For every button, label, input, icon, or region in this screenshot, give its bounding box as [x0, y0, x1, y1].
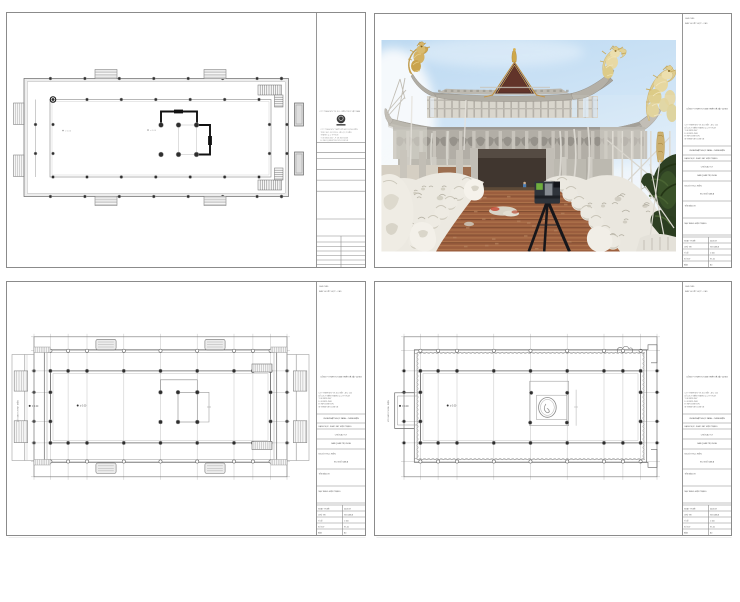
svg-text:E: INFO@VIET.VN: E: INFO@VIET.VN	[685, 136, 701, 138]
svg-text:CÔNG TY TNHH TƯ VẤN THIẾT KẾ X: CÔNG TY TNHH TƯ VẤN THIẾT KẾ XÂY DỰNG	[320, 376, 362, 379]
svg-text:E: INFO@VIET.VN: E: INFO@VIET.VN	[319, 404, 335, 406]
svg-text:CHỦ ĐẦU TƯ:: CHỦ ĐẦU TƯ:	[335, 434, 348, 437]
svg-text:HẠNG MỤC: KHẢO SÁT HIỆN TRẠNG: HẠNG MỤC: KHẢO SÁT HIỆN TRẠNG	[685, 157, 719, 160]
svg-text:KT-01: KT-01	[710, 259, 715, 261]
svg-text:HẠNG MỤC: KHẢO SÁT HIỆN TRẠNG: HẠNG MỤC: KHẢO SÁT HIỆN TRẠNG	[319, 425, 353, 428]
svg-text:GHI CHÚ:: GHI CHÚ:	[685, 17, 695, 20]
svg-text:04/2019: 04/2019	[344, 509, 351, 511]
svg-text:T: 08 3823 4567: T: 08 3823 4567	[685, 130, 698, 132]
svg-text:CHỦ TRÌ: CHỦ TRÌ	[684, 514, 692, 517]
svg-text:NGưỜI THựC HIỆN:: NGưỜI THựC HIỆN:	[319, 453, 337, 456]
svg-text:NGÀY TH.KẾ: NGÀY TH.KẾ	[684, 508, 696, 511]
svg-text:NGÀY TH.KẾ: NGÀY TH.KẾ	[684, 240, 696, 243]
svg-text:CHÙA PHẬT NGỌC XANH - CHÍNH ĐI: CHÙA PHẬT NGỌC XANH - CHÍNH ĐIỆN	[689, 417, 725, 420]
svg-text:BAN QUẢN TRỊ CHÙA: BAN QUẢN TRỊ CHÙA	[697, 442, 717, 445]
svg-text:GHI CHÚ:: GHI CHÚ:	[685, 285, 695, 288]
svg-text:± 0.00: ± 0.00	[32, 406, 39, 408]
svg-text:W: WWW.VIET.COM.VN: W: WWW.VIET.COM.VN	[319, 407, 339, 409]
svg-text:A3: A3	[710, 532, 712, 535]
svg-text:CHỦ ĐẦU TƯ:: CHỦ ĐẦU TƯ:	[701, 166, 714, 169]
svg-text:1:100: 1:100	[710, 521, 715, 523]
svg-text:GHI CHÚ:: GHI CHÚ:	[319, 285, 329, 288]
svg-text:TÊN BẢN Vẽ:: TÊN BẢN Vẽ:	[685, 473, 697, 476]
svg-text:BẢN Vẽ KẾT HỢP - CAD: BẢN Vẽ KẾT HỢP - CAD	[319, 290, 342, 293]
svg-text:04/2019: 04/2019	[710, 509, 717, 511]
svg-text:04/2019: 04/2019	[710, 241, 717, 243]
svg-text:SỐ B.V: SỐ B.V	[684, 526, 691, 529]
svg-text:E: INFO@VIET.VN: E: INFO@VIET.VN	[685, 404, 701, 406]
svg-text:HẠNG MỤC: KHẢO SÁT HIỆN TRẠNG: HẠNG MỤC: KHẢO SÁT HIỆN TRẠNG	[685, 425, 719, 428]
svg-text:KT-01: KT-01	[710, 527, 715, 529]
svg-text:LÊ LỢI, P. BẾN THÀNH, Q.1, TP.: LÊ LỢI, P. BẾN THÀNH, Q.1, TP. HCM	[685, 394, 717, 397]
svg-text:LÊ LỢI, P. BẾN THÀNH, Q.1, TP.: LÊ LỢI, P. BẾN THÀNH, Q.1, TP. HCM	[685, 126, 717, 129]
svg-text:± 0.00: ± 0.00	[402, 406, 409, 408]
svg-text:C.TY TNHH MTV T.K X.D VIỆT - Đ: C.TY TNHH MTV T.K X.D VIỆT - Đ/C: 125	[319, 392, 353, 395]
svg-text:C.TY TNHH MTV THIẾT KẾ XÂY DỰN: C.TY TNHH MTV THIẾT KẾ XÂY DỰNG KIẾN	[321, 128, 359, 131]
svg-text:F: 08 3823 4568: F: 08 3823 4568	[319, 401, 332, 403]
svg-text:F: 08 3823 4568: F: 08 3823 4568	[685, 401, 698, 403]
svg-text:TÊN BẢN Vẽ:: TÊN BẢN Vẽ:	[685, 205, 697, 208]
svg-text:LỐI VÀO CHÍNH ĐIỆN: LỐI VÀO CHÍNH ĐIỆN	[17, 400, 20, 423]
svg-text:TỈ LỆ: TỈ LỆ	[318, 520, 323, 523]
svg-text:TỈ LỆ: TỈ LỆ	[684, 520, 689, 523]
svg-text:T: 08 3823 4567 - F: 08 3823 4: T: 08 3823 4567 - F: 08 3823 4568	[321, 137, 349, 139]
svg-text:NG.VĂN A: NG.VĂN A	[710, 246, 720, 249]
svg-text:KS. NGÔ VĂN A: KS. NGÔ VĂN A	[334, 461, 349, 464]
svg-text:W: WWW.VIET.COM.VN: W: WWW.VIET.COM.VN	[685, 407, 705, 409]
svg-text:BẢN: BẢN	[318, 532, 323, 535]
svg-text:1:100: 1:100	[344, 521, 349, 523]
svg-text:C.TY TNHH MTV T.K X.D - KIẾN T: C.TY TNHH MTV T.K X.D - KIẾN TRÚC VIỆT N…	[320, 110, 361, 113]
svg-text:CÔNG TY TNHH TƯ VẤN THIẾT KẾ X: CÔNG TY TNHH TƯ VẤN THIẾT KẾ XÂY DỰNG	[686, 108, 728, 111]
svg-text:± 0.00: ± 0.00	[65, 131, 72, 133]
svg-text:BẢN Vẽ KẾT HỢP - CAD: BẢN Vẽ KẾT HỢP - CAD	[685, 22, 708, 25]
svg-text:KS. NGÔ VĂN A: KS. NGÔ VĂN A	[700, 461, 715, 464]
svg-text:W: WWW.VIET.COM.VN: W: WWW.VIET.COM.VN	[685, 139, 705, 141]
svg-text:TRÚC Đ/C: SỐ 125 Đ. LÊ LỢI, P.: TRÚC Đ/C: SỐ 125 Đ. LÊ LỢI, P. BẾN	[321, 131, 353, 134]
svg-text:1:100: 1:100	[710, 253, 715, 255]
svg-text:TÊN BẢN Vẽ:: TÊN BẢN Vẽ:	[319, 473, 331, 476]
svg-text:NG.VĂN A: NG.VĂN A	[710, 514, 720, 517]
svg-text:T: 08 3823 4567: T: 08 3823 4567	[685, 398, 698, 400]
svg-text:NGÀY TH.KẾ: NGÀY TH.KẾ	[318, 508, 330, 511]
svg-text:A3: A3	[344, 532, 346, 535]
svg-text:BẢN Vẽ KẾT HỢP - CAD: BẢN Vẽ KẾT HỢP - CAD	[685, 290, 708, 293]
svg-text:NGưỜI THựC HIỆN:: NGưỜI THựC HIỆN:	[685, 453, 703, 456]
svg-text:C.TY TNHH MTV T.K X.D VIỆT - Đ: C.TY TNHH MTV T.K X.D VIỆT - Đ/C: 125	[685, 392, 719, 395]
svg-text:KT-01: KT-01	[344, 527, 349, 529]
svg-text:NGưỜI THựC HIỆN:: NGưỜI THựC HIỆN:	[685, 185, 703, 188]
svg-text:CÔNG TY TNHH TƯ VẤN THIẾT KẾ X: CÔNG TY TNHH TƯ VẤN THIẾT KẾ XÂY DỰNG	[686, 376, 728, 379]
svg-text:MẶT BẰNG HIỆN TRẠNG: MẶT BẰNG HIỆN TRẠNG	[319, 490, 342, 493]
svg-text:MẶT BẰNG HIỆN TRẠNG: MẶT BẰNG HIỆN TRẠNG	[685, 222, 708, 225]
svg-text:CHÙA PHẬT NGỌC XANH - CHÍNH ĐI: CHÙA PHẬT NGỌC XANH - CHÍNH ĐIỆN	[689, 149, 725, 152]
svg-text:SỐ B.V: SỐ B.V	[318, 526, 325, 529]
svg-text:BẢN: BẢN	[684, 264, 689, 267]
svg-text:BAN QUẢN TRỊ CHÙA: BAN QUẢN TRỊ CHÙA	[697, 174, 717, 177]
svg-text:NG.VĂN A: NG.VĂN A	[344, 514, 354, 517]
svg-text:± 0.00: ± 0.00	[150, 130, 157, 132]
svg-text:BẢN: BẢN	[684, 532, 689, 535]
svg-text:CHÙA PHẬT NGỌC XANH - CHÍNH ĐI: CHÙA PHẬT NGỌC XANH - CHÍNH ĐIỆN	[323, 417, 359, 420]
svg-text:C.TY TNHH MTV T.K X.D VIỆT - Đ: C.TY TNHH MTV T.K X.D VIỆT - Đ/C: 125	[685, 124, 719, 127]
svg-text:E: INFO@KIENTRUCVN.COM.VN: E: INFO@KIENTRUCVN.COM.VN	[321, 140, 349, 142]
svg-text:LỐI VÀO CHÍNH ĐIỆN: LỐI VÀO CHÍNH ĐIỆN	[387, 400, 390, 423]
svg-text:T: 08 3823 4567: T: 08 3823 4567	[319, 398, 332, 400]
svg-text:BAN QUẢN TRỊ CHÙA: BAN QUẢN TRỊ CHÙA	[331, 442, 351, 445]
svg-text:F: 08 3823 4568: F: 08 3823 4568	[685, 133, 698, 135]
svg-text:± 0.00: ± 0.00	[450, 406, 457, 408]
svg-text:MẶT BẰNG HIỆN TRẠNG: MẶT BẰNG HIỆN TRẠNG	[685, 490, 708, 493]
svg-text:A3: A3	[710, 264, 712, 267]
svg-text:± 0.00: ± 0.00	[80, 406, 87, 408]
svg-text:CHỦ TRÌ: CHỦ TRÌ	[318, 514, 326, 517]
svg-text:CHỦ TRÌ: CHỦ TRÌ	[684, 246, 692, 249]
svg-text:TỈ LỆ: TỈ LỆ	[684, 252, 689, 255]
svg-text:SỐ B.V: SỐ B.V	[684, 258, 691, 261]
svg-text:THÀNH, Q.1, TP.HCM: THÀNH, Q.1, TP.HCM	[321, 134, 339, 137]
svg-text:CHỦ ĐẦU TƯ:: CHỦ ĐẦU TƯ:	[701, 434, 714, 437]
svg-text:KS. NGÔ VĂN A: KS. NGÔ VĂN A	[700, 193, 715, 196]
svg-text:LÊ LỢI, P. BẾN THÀNH, Q.1, TP.: LÊ LỢI, P. BẾN THÀNH, Q.1, TP. HCM	[319, 394, 351, 397]
